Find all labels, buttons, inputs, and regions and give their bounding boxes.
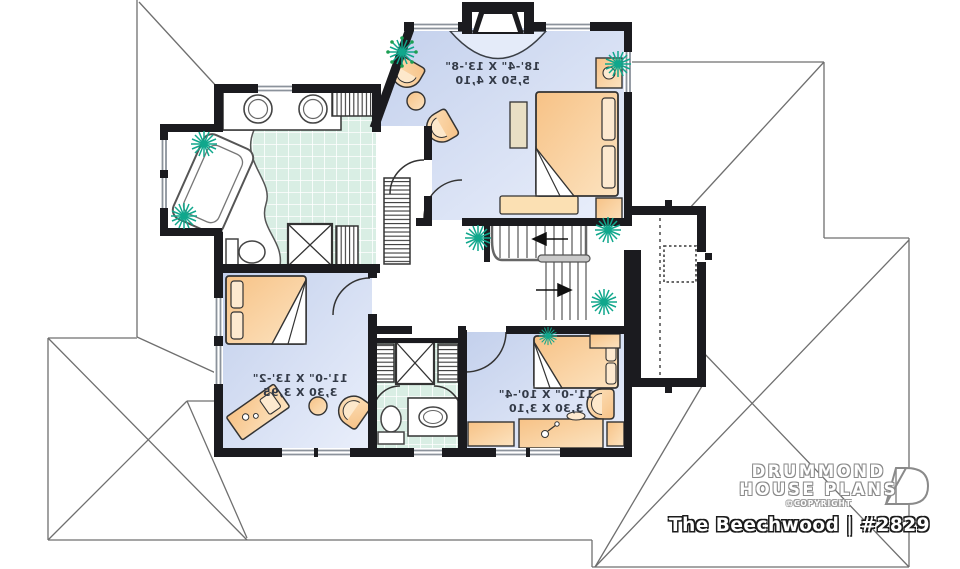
window-bath (258, 84, 292, 93)
nightstand-3 (590, 334, 620, 348)
toilet-1 (226, 239, 265, 265)
vanity-2 (408, 398, 458, 436)
window-bed3-bottom-1 (496, 448, 526, 457)
side-table (407, 92, 425, 110)
plan-title: The Beechwood | #2829 (669, 515, 930, 536)
bedroom3-dimensions: 11'-0" X 10'-4" 3,30 X 3,10 (476, 388, 616, 416)
rug (500, 196, 578, 214)
window-master-left (414, 22, 458, 31)
window-bed2-left-1 (214, 298, 223, 336)
master-bed (536, 92, 618, 196)
master-bedroom-metric: 5,50 X 4,10 (420, 74, 565, 88)
floorplan-canvas: 18'-4" X 13'-8" 5,50 X 4,10 11'-0" X 13'… (0, 0, 960, 569)
closet-center (336, 226, 358, 266)
linen-closet (332, 90, 374, 116)
attic-room-floor (638, 214, 700, 382)
window-bath2 (414, 448, 442, 457)
toilet-2 (378, 406, 404, 444)
window-bed2-bottom-1 (282, 448, 314, 457)
brand-line2: HOUSE PLANS (739, 481, 898, 499)
copyright-text: ©COPYRIGHT (739, 499, 898, 509)
dresser-b3-right (607, 422, 624, 446)
plant-icon (386, 36, 418, 68)
bedroom3-imperial: 11'-0" X 10'-4" (476, 388, 616, 402)
window-bed2-bottom-2 (318, 448, 350, 457)
plant-icon (591, 289, 617, 315)
staircase (492, 218, 590, 320)
drummond-logo: DRUMMOND HOUSE PLANS ©COPYRIGHT (739, 463, 898, 509)
shelf-unit-2 (396, 342, 434, 384)
closet-b2-right (438, 344, 458, 382)
shelf-unit-1 (288, 224, 332, 266)
window-bed3-bottom-2 (530, 448, 560, 457)
dresser-b3-left (468, 422, 514, 446)
bedroom2-metric: 3,30 X 3,95 (230, 386, 370, 400)
bedroom3-metric: 3,30 X 3,10 (476, 402, 616, 416)
bed-2 (226, 276, 306, 344)
dresser-master (510, 102, 527, 148)
window-bed2-left-2 (214, 346, 223, 384)
bedroom2-dimensions: 11'-0" X 13'-2" 3,30 X 3,95 (230, 372, 370, 400)
bedroom2-imperial: 11'-0" X 13'-2" (230, 372, 370, 386)
master-bedroom-imperial: 18'-4" X 13'-8" (420, 60, 565, 74)
brand-line1: DRUMMOND (739, 463, 898, 481)
window-alcove-2 (160, 178, 168, 208)
window-master-right (546, 22, 590, 31)
master-bedroom-dimensions: 18'-4" X 13'-8" 5,50 X 4,10 (420, 60, 565, 88)
closet-hall (384, 178, 410, 264)
window-alcove-1 (160, 140, 168, 170)
